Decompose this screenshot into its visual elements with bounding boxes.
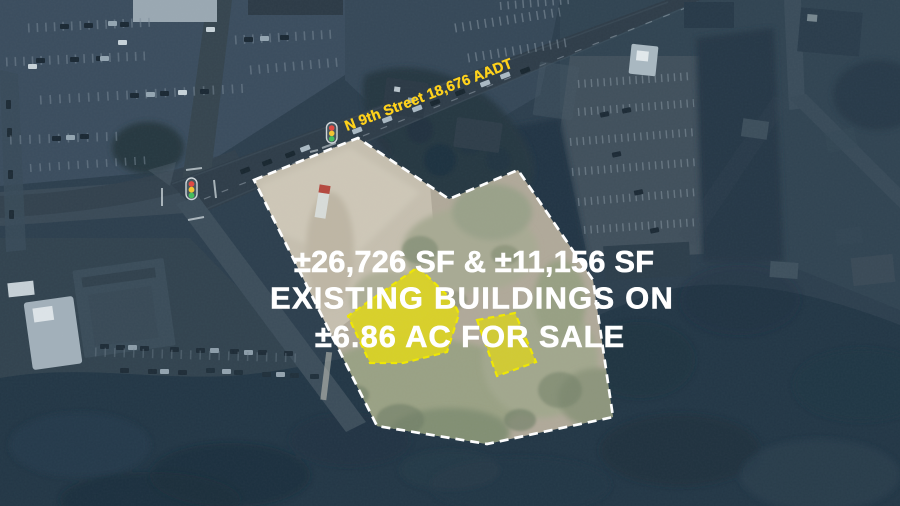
- svg-text:±6.86 AC FOR SALE: ±6.86 AC FOR SALE: [315, 319, 625, 354]
- svg-text:±26,726 SF & ±11,156 SF: ±26,726 SF & ±11,156 SF: [294, 244, 654, 279]
- svg-text:EXISTING BUILDINGS ON: EXISTING BUILDINGS ON: [270, 281, 674, 316]
